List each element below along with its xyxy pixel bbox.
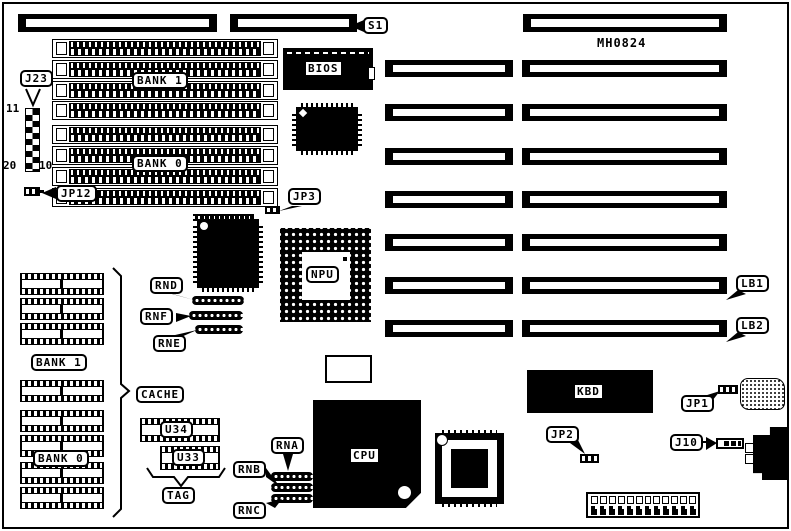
- motherboard-diagram: MH0824 BANK 1 BANK 0 J23 11 20 10 JP12 J…: [0, 0, 791, 531]
- bios-socket-mark: [287, 52, 369, 54]
- cache-label: CACHE: [136, 386, 184, 403]
- top-slot-right: [230, 14, 357, 32]
- jp3-label: JP3: [288, 188, 321, 205]
- cache-sram-row: [20, 273, 104, 295]
- jp12-label: JP12: [56, 185, 97, 202]
- lb2-label: LB2: [736, 317, 769, 334]
- expansion-slot: [523, 14, 727, 32]
- rnc-network: [271, 494, 313, 503]
- expansion-slot: [522, 148, 727, 165]
- rnd-label: RND: [150, 277, 183, 294]
- jp2-jumper: [580, 454, 599, 463]
- jp1-label: JP1: [681, 395, 714, 412]
- simm-bank1-label: BANK 1: [132, 72, 188, 89]
- cache-sram-row: [20, 323, 104, 345]
- rna-network: [271, 472, 313, 481]
- j23-pin11-number: 11: [6, 103, 19, 114]
- simm-socket: [52, 125, 278, 144]
- s1-label: S1: [363, 17, 388, 34]
- j23-pin20-number: 20: [3, 160, 16, 171]
- simm-socket: [52, 101, 278, 120]
- simm-bank0-label: BANK 0: [132, 155, 188, 172]
- cache-sram-row: [20, 380, 104, 402]
- cache-sram-row: [20, 487, 104, 509]
- top-slot-left: [18, 14, 217, 32]
- rnb-label: RNB: [233, 461, 266, 478]
- din-side-pin: [745, 454, 754, 464]
- lb1-label: LB1: [736, 275, 769, 292]
- bios-notch: [368, 67, 375, 80]
- board-part-number: MH0824: [597, 37, 646, 49]
- plcc-socket: [432, 430, 507, 507]
- expansion-slot: [385, 277, 513, 294]
- j10-label: J10: [670, 434, 703, 451]
- rna-label: RNA: [271, 437, 304, 454]
- rnf-label: RNF: [140, 308, 173, 325]
- expansion-slot: [385, 191, 513, 208]
- j23-label: J23: [20, 70, 53, 87]
- tag-label: TAG: [162, 487, 195, 504]
- jp12-jumper: [24, 187, 40, 196]
- j23-pin-header: [25, 108, 40, 172]
- jp1-jumper: [718, 385, 738, 394]
- expansion-slot-lb1: [522, 277, 727, 294]
- rnf-network: [189, 311, 243, 320]
- power-connector: [586, 492, 700, 518]
- cache-bank1-label: BANK 1: [31, 354, 87, 371]
- rnc-label: RNC: [233, 502, 266, 519]
- oscillator-socket: [325, 355, 372, 383]
- rnd-network: [192, 296, 244, 305]
- cpu-label: CPU: [351, 449, 378, 462]
- cache-sram-row: [20, 410, 104, 432]
- simm-socket: [52, 39, 278, 58]
- bios-label: BIOS: [306, 62, 341, 75]
- expansion-slot: [385, 148, 513, 165]
- plcc-pin1-dot: [436, 434, 448, 446]
- power-connector-pins: [591, 509, 696, 515]
- expansion-slot: [522, 234, 727, 251]
- rnb-network: [271, 483, 313, 492]
- expansion-slot: [522, 191, 727, 208]
- expansion-slot: [385, 104, 513, 121]
- cache-sram-row: [20, 298, 104, 320]
- j10-jumper: [716, 438, 744, 449]
- din-side-pin: [745, 443, 754, 453]
- chipset-plcc-chip: [292, 103, 362, 155]
- power-connector-cells: [591, 496, 696, 504]
- rne-label: RNE: [153, 335, 186, 352]
- jp2-label: JP2: [546, 426, 579, 443]
- expansion-slot: [385, 234, 513, 251]
- expansion-slot: [385, 60, 513, 77]
- rne-network: [195, 325, 243, 334]
- expansion-slot: [522, 60, 727, 77]
- kbd-label: KBD: [575, 385, 602, 398]
- expansion-slot: [385, 320, 513, 337]
- u34-label: U34: [160, 421, 193, 438]
- cpu-pin1-dot: [398, 486, 411, 499]
- keyboard-din-connector: [753, 427, 789, 480]
- controller-qfp-chip: [193, 215, 263, 292]
- jp3-jumper: [265, 206, 280, 214]
- j23-pin10-number: 10: [39, 160, 52, 171]
- u33-label: U33: [172, 449, 205, 466]
- expansion-slot: [522, 104, 727, 121]
- npu-pin1-mark: [343, 257, 347, 261]
- cache-bank0-label: BANK 0: [33, 450, 89, 467]
- npu-label: NPU: [306, 266, 339, 283]
- solder-pad-area: [740, 378, 785, 410]
- expansion-slot-lb2: [522, 320, 727, 337]
- pin1-dot-mark: [200, 222, 208, 230]
